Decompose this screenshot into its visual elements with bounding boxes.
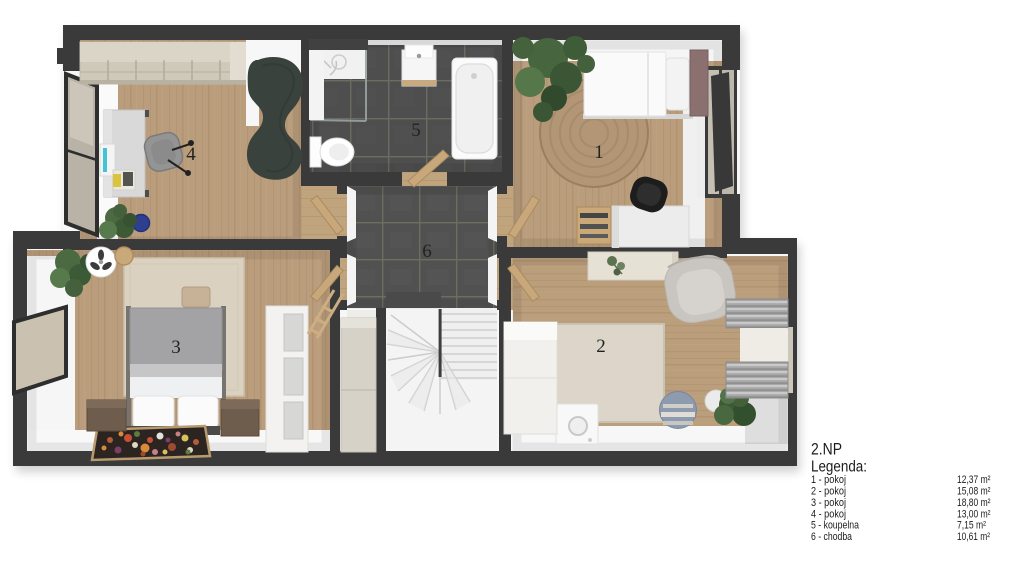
svg-text:3: 3 xyxy=(171,337,181,358)
svg-text:4: 4 xyxy=(186,144,196,165)
svg-text:10,61 m²: 10,61 m² xyxy=(957,531,990,543)
svg-text:2: 2 xyxy=(596,336,606,357)
svg-text:3 - pokoj: 3 - pokoj xyxy=(811,497,846,509)
svg-text:5 - koupelna: 5 - koupelna xyxy=(811,520,860,532)
svg-text:12,37 m²: 12,37 m² xyxy=(957,474,991,486)
svg-text:2 - pokoj: 2 - pokoj xyxy=(811,486,846,498)
svg-text:2.NP: 2.NP xyxy=(811,441,842,459)
svg-text:7,15 m²: 7,15 m² xyxy=(957,520,986,532)
svg-text:6: 6 xyxy=(422,241,432,262)
svg-text:1: 1 xyxy=(594,142,604,163)
svg-text:6 - chodba: 6 - chodba xyxy=(811,531,853,543)
svg-text:Legenda:: Legenda: xyxy=(811,459,867,476)
svg-text:1 - pokoj: 1 - pokoj xyxy=(811,474,846,486)
svg-text:15,08 m²: 15,08 m² xyxy=(957,486,991,498)
svg-text:18,80 m²: 18,80 m² xyxy=(957,497,991,509)
svg-text:5: 5 xyxy=(411,120,421,141)
